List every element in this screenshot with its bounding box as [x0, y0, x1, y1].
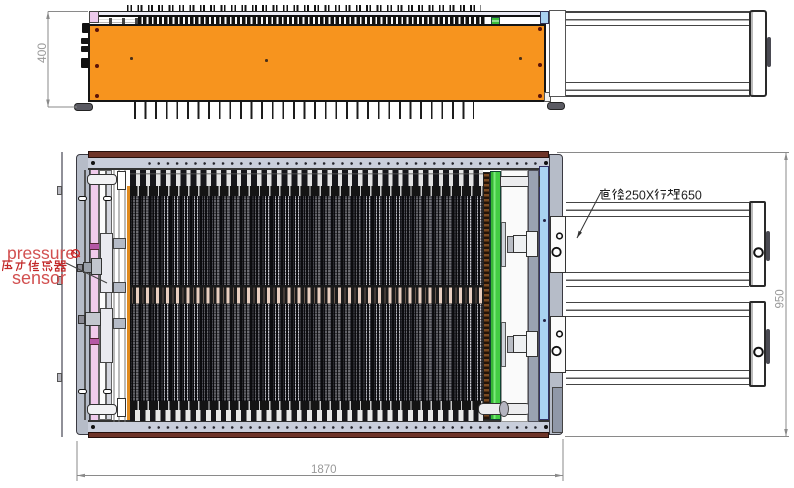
svg-text:650: 650	[681, 189, 702, 203]
svg-text:250X: 250X	[625, 189, 655, 203]
svg-text:1870: 1870	[311, 464, 337, 476]
svg-text:400: 400	[35, 43, 49, 63]
svg-text:950: 950	[775, 289, 787, 308]
